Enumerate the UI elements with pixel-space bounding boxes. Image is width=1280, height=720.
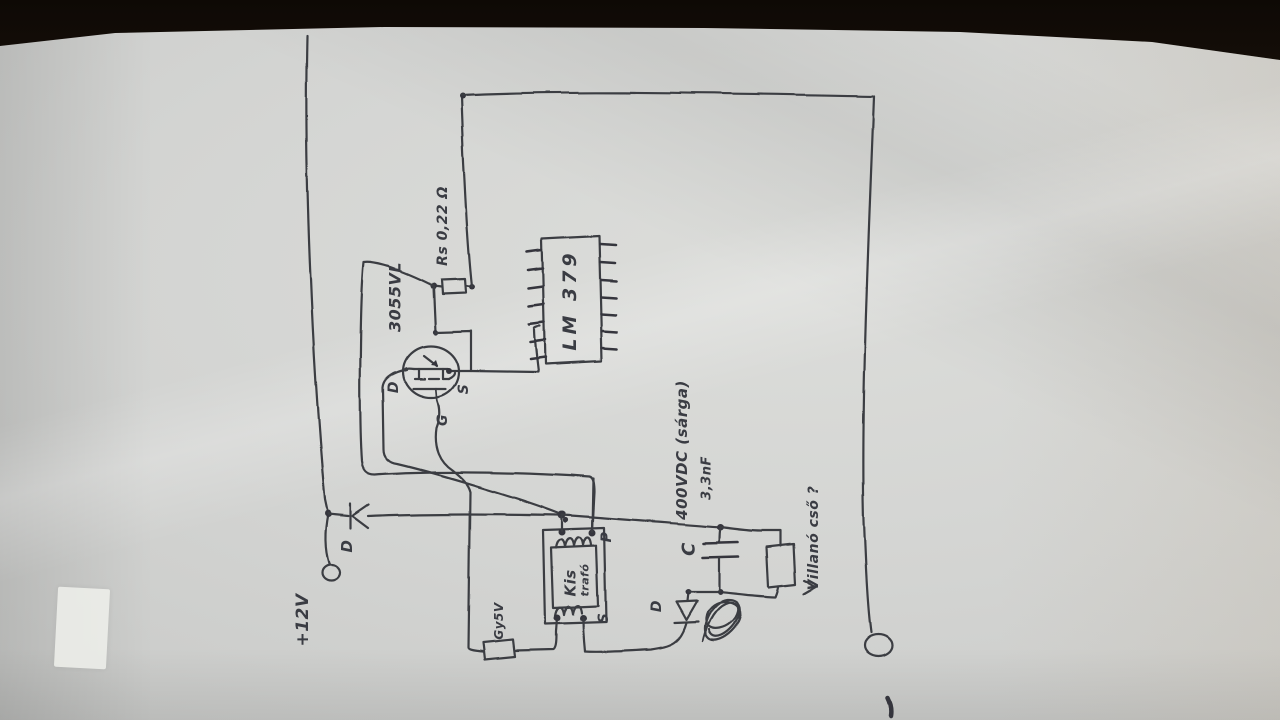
junction-dot: [563, 517, 568, 522]
capacitor-label: C: [679, 542, 700, 556]
transformer-symbol: [543, 479, 606, 624]
source-wire: [432, 287, 540, 374]
output-terminal: [864, 634, 892, 656]
input-diode: [328, 504, 369, 528]
lower-rail-wire: [688, 586, 779, 597]
scratched-out-component: [703, 600, 741, 641]
top-rail-wire: [461, 96, 472, 287]
secondary-label: S: [596, 613, 612, 624]
cap-value-label: 3,3nF: [700, 456, 715, 500]
storage-capacitor: [702, 527, 739, 592]
ic-label: LM 379: [559, 249, 581, 350]
cap-voltage-label: 400VDC (sárga): [673, 380, 691, 520]
secondary-diode-label: D: [649, 600, 665, 612]
transformer-label-line1: Kis: [563, 564, 579, 597]
sense-resistor: [430, 279, 475, 294]
supply-rail-wire: [306, 36, 328, 514]
transformer-label: Kis trafó: [563, 564, 590, 597]
gate-box-label: Gy5V: [492, 602, 506, 639]
sense-resistor-label: Rs 0,22 Ω: [435, 186, 451, 266]
right-rail-wire: [863, 96, 874, 632]
input-diode-label: D: [338, 540, 356, 553]
positive-rail-wire: [369, 514, 559, 516]
transformer-label-line2: trafó: [579, 564, 591, 597]
stray-mark: [888, 698, 891, 716]
transistor-label: 3055VL: [386, 262, 405, 332]
supply-label: +12V: [293, 593, 313, 646]
gate-label: G: [435, 414, 451, 426]
primary-label: P: [599, 532, 615, 543]
flash-tube: [767, 544, 796, 587]
gate-wire: [435, 389, 483, 652]
top-rail-wire: [461, 92, 874, 96]
drain-label: D: [386, 381, 402, 393]
flash-tube-label: Villanó cső ?: [806, 486, 822, 591]
source-label: S: [456, 384, 472, 395]
schematic-drawing: [0, 0, 1280, 720]
positive-rail-wire: [562, 515, 720, 527]
